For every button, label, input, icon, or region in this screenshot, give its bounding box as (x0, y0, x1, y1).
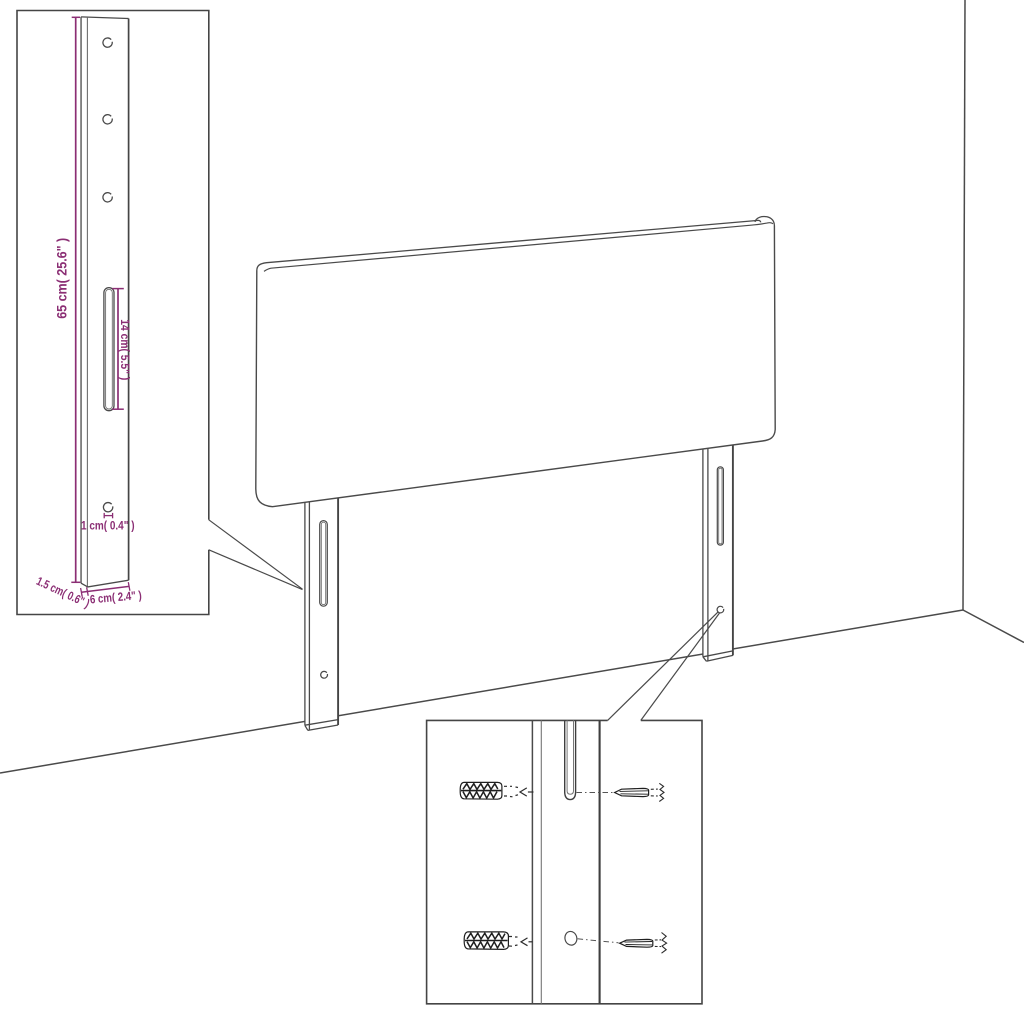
svg-text:65 cm( 25.6" ): 65 cm( 25.6" ) (55, 238, 70, 319)
svg-text:14 cm( 5.5" ): 14 cm( 5.5" ) (118, 319, 132, 380)
svg-text:1 cm( 0.4" ): 1 cm( 0.4" ) (81, 519, 135, 533)
